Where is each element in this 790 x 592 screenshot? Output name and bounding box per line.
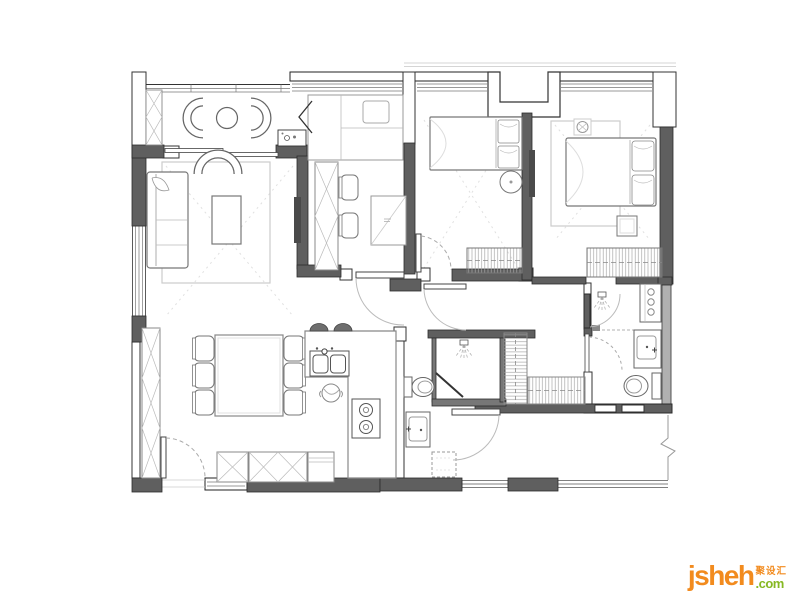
burner — [360, 421, 373, 434]
master-bedroom — [529, 119, 662, 277]
pot — [322, 384, 340, 402]
mini-bar-sink — [278, 130, 306, 146]
tv-panel — [529, 150, 535, 197]
door-leaf — [424, 284, 466, 289]
door-leaf — [356, 272, 404, 278]
master-window — [561, 84, 652, 91]
dining-table — [215, 335, 283, 416]
logo-brand: jsheh — [688, 562, 754, 590]
pillow — [498, 146, 519, 168]
parapet-lines — [404, 63, 676, 67]
bedroom2-window — [417, 84, 487, 91]
toilet-tank — [404, 377, 412, 397]
tv-panel — [294, 197, 301, 243]
balcony-cabinet — [146, 90, 162, 145]
cushion — [363, 101, 389, 123]
left-wall — [132, 342, 140, 478]
chair — [341, 213, 358, 238]
door-leaf — [585, 334, 589, 372]
door-swing — [589, 337, 622, 370]
base-cabinet — [249, 452, 307, 482]
watermark-logo[interactable]: jsheh 聚设汇 .com — [688, 562, 787, 590]
door-swing — [590, 294, 620, 327]
shower-room-wall — [432, 399, 506, 406]
hall-bathroom — [404, 340, 472, 397]
door-leaf — [416, 234, 421, 272]
toilet-tank — [652, 373, 661, 399]
bar-stool — [334, 324, 352, 332]
shower-head-icon — [456, 340, 472, 359]
door-leaf — [584, 294, 590, 328]
toilet — [412, 378, 434, 397]
entry-door-swing — [453, 415, 499, 460]
ac-duct — [488, 72, 560, 117]
kitchen-east-wall — [396, 341, 404, 478]
door-jamb — [340, 269, 352, 280]
burner — [360, 404, 373, 417]
faucet-icon — [322, 349, 327, 354]
toilet — [624, 376, 648, 397]
chair — [341, 175, 358, 200]
bar-stool — [310, 324, 328, 332]
floor-plan-drawing — [0, 0, 790, 592]
shower-head-icon — [594, 292, 610, 311]
column — [132, 72, 146, 148]
logo-cjk: 聚设汇 — [755, 567, 787, 577]
column — [403, 72, 415, 144]
door-leaf — [161, 437, 166, 478]
logo-tld: .com — [755, 577, 783, 590]
appliance-cabinet — [308, 452, 334, 482]
entry-window — [462, 480, 508, 488]
coffee-table — [212, 196, 241, 244]
entry-door-leaf — [452, 409, 500, 415]
round-table — [217, 108, 238, 129]
door-threshold — [162, 480, 205, 487]
pillow — [632, 175, 654, 205]
pillow — [632, 141, 654, 171]
door-swing — [424, 289, 466, 330]
pivot-shower-door — [436, 373, 463, 397]
bath-east-wall — [662, 283, 671, 409]
bedroom-2 — [430, 117, 522, 273]
desk-counter — [315, 162, 338, 270]
door-swing — [166, 438, 205, 477]
left-window-glazing — [132, 226, 146, 316]
bottom-right-window — [558, 481, 668, 488]
study-window — [292, 84, 402, 91]
balcony-glazing — [146, 85, 290, 93]
master-bathroom — [592, 284, 661, 399]
column — [653, 72, 676, 127]
top-wall-band — [290, 72, 653, 81]
pillow — [498, 120, 519, 143]
entry-cabinet — [432, 452, 456, 477]
door-swing — [421, 236, 451, 270]
break-line — [661, 415, 675, 480]
floor-plan-page: jsheh 聚设汇 .com — [0, 0, 790, 592]
